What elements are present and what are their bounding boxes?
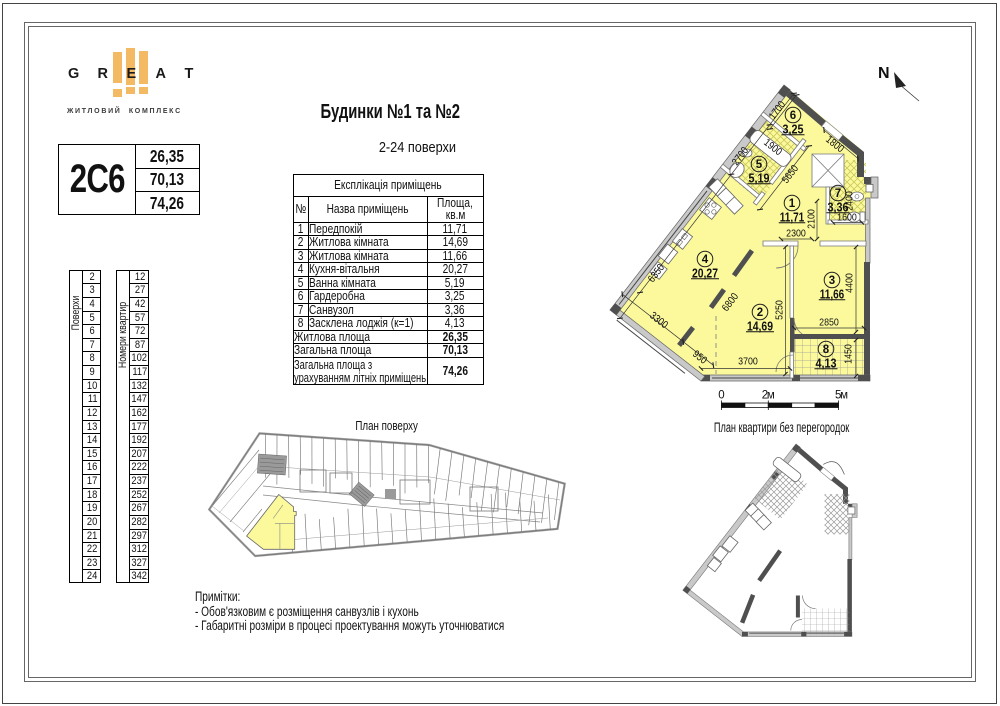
svg-text:3700: 3700 bbox=[738, 356, 758, 368]
svg-text:20,27: 20,27 bbox=[692, 266, 718, 281]
svg-text:5м: 5м bbox=[835, 390, 848, 402]
svg-text:1: 1 bbox=[789, 198, 796, 210]
svg-text:6: 6 bbox=[790, 110, 796, 122]
svg-text:N: N bbox=[878, 65, 890, 82]
svg-text:2300: 2300 bbox=[786, 228, 806, 240]
svg-text:11,71: 11,71 bbox=[780, 210, 805, 225]
svg-text:8: 8 bbox=[823, 344, 830, 356]
svg-text:1600: 1600 bbox=[837, 212, 857, 224]
svg-text:3,25: 3,25 bbox=[783, 122, 804, 137]
svg-text:14,69: 14,69 bbox=[747, 319, 773, 334]
svg-text:5250: 5250 bbox=[774, 300, 786, 320]
svg-text:7: 7 bbox=[835, 188, 841, 200]
svg-text:5,19: 5,19 bbox=[749, 171, 770, 186]
svg-text:1450: 1450 bbox=[843, 344, 855, 364]
svg-text:2100: 2100 bbox=[806, 209, 818, 229]
svg-text:4400: 4400 bbox=[844, 273, 856, 293]
svg-text:2850: 2850 bbox=[819, 317, 839, 329]
svg-text:11,66: 11,66 bbox=[820, 287, 845, 302]
svg-text:5: 5 bbox=[756, 159, 763, 171]
svg-text:4,13: 4,13 bbox=[816, 356, 837, 371]
svg-text:2: 2 bbox=[757, 307, 763, 319]
svg-text:4: 4 bbox=[702, 254, 709, 266]
svg-text:3: 3 bbox=[829, 275, 835, 287]
svg-text:2м: 2м bbox=[762, 390, 775, 402]
svg-text:2400: 2400 bbox=[844, 191, 856, 211]
svg-text:0: 0 bbox=[718, 390, 724, 402]
